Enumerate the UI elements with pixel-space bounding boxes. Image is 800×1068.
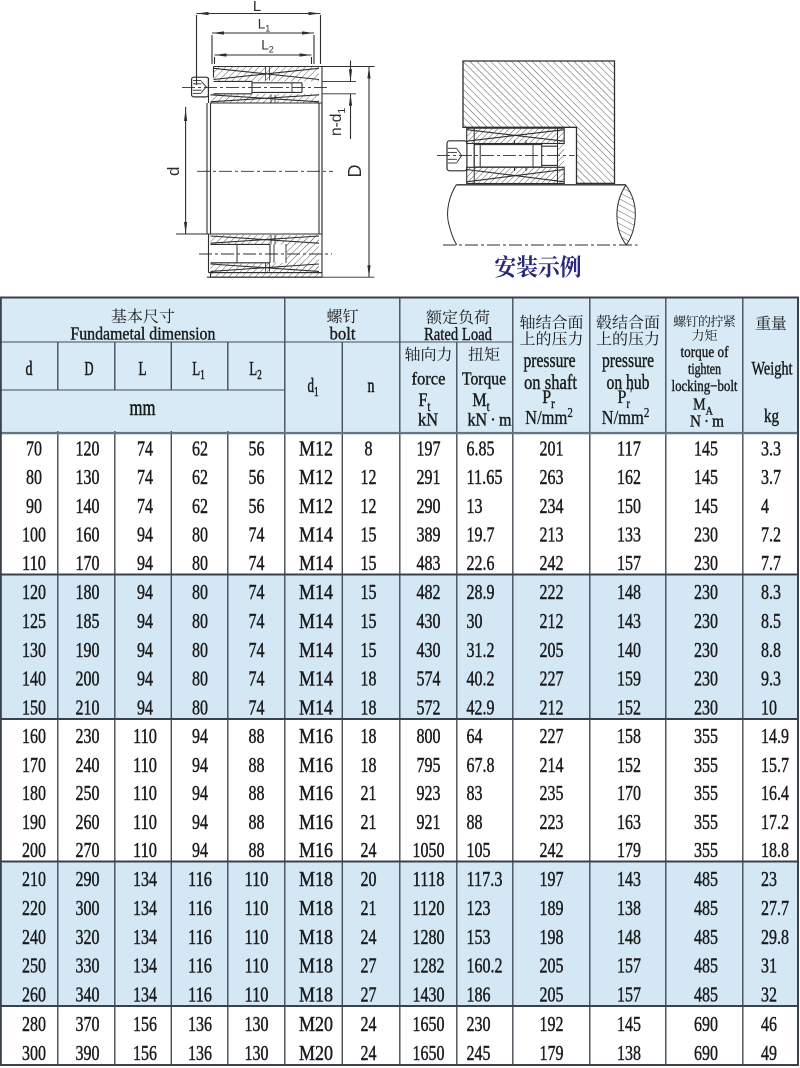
svg-text:430: 430 (417, 639, 441, 663)
svg-text:260: 260 (22, 984, 46, 1008)
svg-text:205: 205 (540, 984, 564, 1008)
svg-text:bolt: bolt (330, 323, 356, 343)
svg-text:159: 159 (617, 668, 641, 692)
svg-text:8.5: 8.5 (761, 610, 781, 634)
svg-text:160: 160 (76, 524, 100, 548)
svg-text:263: 263 (540, 466, 564, 490)
svg-text:116: 116 (188, 955, 212, 979)
svg-text:214: 214 (540, 754, 564, 778)
svg-text:80: 80 (192, 639, 208, 663)
svg-text:18.8: 18.8 (761, 839, 789, 863)
svg-text:340: 340 (76, 984, 100, 1008)
svg-text:145: 145 (694, 466, 718, 490)
svg-text:270: 270 (76, 839, 100, 863)
svg-text:130: 130 (245, 1013, 269, 1037)
svg-text:4: 4 (761, 495, 769, 519)
svg-text:140: 140 (617, 639, 641, 663)
svg-text:42.9: 42.9 (467, 697, 495, 721)
svg-text:M20: M20 (299, 1013, 333, 1037)
svg-text:210: 210 (76, 697, 100, 721)
svg-text:116: 116 (188, 984, 212, 1008)
svg-text:145: 145 (694, 437, 718, 461)
svg-text:145: 145 (694, 495, 718, 519)
svg-text:201: 201 (540, 437, 564, 461)
svg-text:110: 110 (245, 926, 269, 950)
svg-text:9.3: 9.3 (761, 668, 781, 692)
svg-text:tighten: tighten (688, 361, 722, 378)
svg-text:74: 74 (249, 610, 265, 634)
svg-text:21: 21 (361, 782, 377, 806)
svg-text:3.3: 3.3 (761, 437, 781, 461)
svg-text:230: 230 (694, 610, 718, 634)
svg-text:143: 143 (617, 610, 641, 634)
svg-text:200: 200 (76, 668, 100, 692)
svg-text:94: 94 (137, 668, 153, 692)
svg-text:110: 110 (133, 725, 157, 749)
svg-text:on hub: on hub (607, 371, 650, 394)
svg-text:13: 13 (467, 495, 483, 519)
svg-text:62: 62 (192, 437, 208, 461)
svg-text:15: 15 (361, 610, 377, 634)
svg-text:M12: M12 (299, 437, 333, 461)
svg-text:205: 205 (540, 955, 564, 979)
svg-text:62: 62 (192, 466, 208, 490)
svg-text:49: 49 (761, 1042, 777, 1066)
svg-text:80: 80 (192, 668, 208, 692)
svg-text:110: 110 (133, 782, 157, 806)
svg-text:Fundametal dimension: Fundametal dimension (70, 323, 216, 343)
svg-text:8.3: 8.3 (761, 581, 781, 605)
svg-text:torque of: torque of (681, 344, 729, 361)
svg-text:94: 94 (192, 839, 208, 863)
svg-text:74: 74 (249, 524, 265, 548)
svg-text:290: 290 (76, 868, 100, 892)
svg-text:389: 389 (417, 524, 441, 548)
svg-text:260: 260 (76, 811, 100, 835)
svg-text:12: 12 (361, 495, 377, 519)
svg-text:138: 138 (617, 897, 641, 921)
svg-text:M18: M18 (299, 868, 333, 892)
svg-text:M16: M16 (299, 725, 333, 749)
svg-text:80: 80 (26, 466, 42, 490)
svg-text:134: 134 (133, 897, 157, 921)
svg-text:31: 31 (761, 955, 777, 979)
svg-text:94: 94 (137, 610, 153, 634)
svg-text:158: 158 (617, 725, 641, 749)
svg-text:27: 27 (361, 955, 377, 979)
svg-text:483: 483 (417, 552, 441, 576)
svg-text:94: 94 (192, 725, 208, 749)
svg-text:245: 245 (467, 1042, 491, 1066)
svg-text:force: force (412, 368, 446, 388)
svg-text:355: 355 (694, 782, 718, 806)
svg-text:M14: M14 (299, 610, 333, 634)
svg-text:190: 190 (22, 811, 46, 835)
svg-text:197: 197 (417, 437, 441, 461)
svg-text:795: 795 (417, 754, 441, 778)
svg-text:24: 24 (361, 839, 377, 863)
svg-text:d: d (164, 167, 183, 176)
svg-text:148: 148 (617, 581, 641, 605)
svg-text:d: d (26, 357, 34, 379)
svg-text:24: 24 (361, 1013, 377, 1037)
svg-text:179: 179 (540, 1042, 564, 1066)
svg-text:235: 235 (540, 782, 564, 806)
svg-text:28.9: 28.9 (467, 581, 495, 605)
svg-text:30: 30 (467, 610, 483, 634)
svg-text:390: 390 (76, 1042, 100, 1066)
svg-text:134: 134 (133, 984, 157, 1008)
svg-text:163: 163 (617, 811, 641, 835)
svg-text:130: 130 (76, 466, 100, 490)
svg-text:24: 24 (361, 926, 377, 950)
svg-text:157: 157 (617, 955, 641, 979)
svg-text:180: 180 (22, 782, 46, 806)
svg-text:74: 74 (249, 668, 265, 692)
svg-text:56: 56 (249, 495, 265, 519)
svg-text:1118: 1118 (413, 868, 445, 892)
svg-text:N/mm2: N/mm2 (602, 405, 650, 428)
svg-text:6.85: 6.85 (467, 437, 495, 461)
svg-text:923: 923 (417, 782, 441, 806)
svg-text:485: 485 (694, 955, 718, 979)
svg-text:242: 242 (540, 839, 564, 863)
svg-text:8: 8 (365, 437, 373, 461)
svg-text:94: 94 (137, 697, 153, 721)
svg-text:16.4: 16.4 (761, 782, 789, 806)
svg-text:152: 152 (617, 697, 641, 721)
svg-text:N · m: N · m (690, 413, 724, 431)
svg-text:M12: M12 (299, 466, 333, 490)
svg-text:83: 83 (467, 782, 483, 806)
svg-text:M14: M14 (299, 552, 333, 576)
svg-text:240: 240 (22, 926, 46, 950)
svg-text:223: 223 (540, 811, 564, 835)
svg-text:22.6: 22.6 (467, 552, 495, 576)
svg-text:220: 220 (22, 897, 46, 921)
svg-text:136: 136 (188, 1013, 212, 1037)
svg-text:242: 242 (540, 552, 564, 576)
svg-text:355: 355 (694, 725, 718, 749)
svg-text:mm: mm (130, 395, 156, 420)
svg-text:320: 320 (76, 926, 100, 950)
svg-text:27: 27 (361, 984, 377, 1008)
svg-text:88: 88 (249, 782, 265, 806)
svg-text:120: 120 (22, 581, 46, 605)
svg-text:240: 240 (76, 754, 100, 778)
svg-text:230: 230 (694, 524, 718, 548)
svg-text:94: 94 (192, 754, 208, 778)
svg-text:160: 160 (22, 725, 46, 749)
svg-text:690: 690 (694, 1042, 718, 1066)
svg-text:80: 80 (192, 610, 208, 634)
svg-text:3.7: 3.7 (761, 466, 781, 490)
svg-text:pressure: pressure (602, 349, 654, 372)
svg-text:40.2: 40.2 (467, 668, 495, 692)
svg-text:198: 198 (540, 926, 564, 950)
svg-text:355: 355 (694, 811, 718, 835)
svg-text:230: 230 (694, 581, 718, 605)
svg-text:157: 157 (617, 552, 641, 576)
svg-text:230: 230 (694, 639, 718, 663)
svg-text:M18: M18 (299, 897, 333, 921)
svg-text:46: 46 (761, 1013, 777, 1037)
svg-text:80: 80 (192, 524, 208, 548)
svg-text:116: 116 (188, 868, 212, 892)
svg-text:210: 210 (22, 868, 46, 892)
svg-text:Rated Load: Rated Load (424, 324, 493, 344)
svg-text:213: 213 (540, 524, 564, 548)
svg-text:M16: M16 (299, 754, 333, 778)
svg-text:15: 15 (361, 524, 377, 548)
svg-text:88: 88 (467, 811, 483, 835)
svg-text:M16: M16 (299, 839, 333, 863)
svg-text:17.2: 17.2 (761, 811, 789, 835)
svg-text:80: 80 (192, 581, 208, 605)
svg-text:160.2: 160.2 (467, 955, 503, 979)
svg-text:80: 80 (192, 697, 208, 721)
svg-text:kN · m: kN · m (468, 409, 512, 429)
svg-text:205: 205 (540, 639, 564, 663)
svg-text:74: 74 (137, 437, 153, 461)
svg-text:15.7: 15.7 (761, 754, 789, 778)
svg-text:21: 21 (361, 897, 377, 921)
svg-text:locking−bolt: locking−bolt (672, 378, 738, 395)
svg-text:230: 230 (694, 668, 718, 692)
svg-text:7.7: 7.7 (761, 552, 781, 576)
svg-text:138: 138 (617, 1042, 641, 1066)
svg-text:94: 94 (192, 782, 208, 806)
svg-text:kN: kN (418, 409, 438, 429)
svg-text:90: 90 (26, 495, 42, 519)
svg-text:100: 100 (22, 524, 46, 548)
svg-text:1650: 1650 (413, 1042, 445, 1066)
svg-text:170: 170 (617, 782, 641, 806)
svg-text:227: 227 (540, 668, 564, 692)
svg-text:355: 355 (694, 839, 718, 863)
svg-text:1282: 1282 (413, 955, 445, 979)
svg-text:23: 23 (761, 868, 777, 892)
svg-text:88: 88 (249, 811, 265, 835)
svg-text:197: 197 (540, 868, 564, 892)
svg-text:157: 157 (617, 984, 641, 1008)
svg-text:94: 94 (192, 811, 208, 835)
svg-text:921: 921 (417, 811, 441, 835)
svg-text:1430: 1430 (413, 984, 445, 1008)
svg-text:148: 148 (617, 926, 641, 950)
svg-text:290: 290 (417, 495, 441, 519)
svg-text:110: 110 (245, 897, 269, 921)
svg-text:130: 130 (22, 639, 46, 663)
svg-text:kg: kg (764, 406, 779, 427)
svg-text:M12: M12 (299, 495, 333, 519)
svg-text:145: 145 (617, 1013, 641, 1037)
svg-text:N/mm2: N/mm2 (525, 405, 573, 428)
svg-text:M16: M16 (299, 782, 333, 806)
svg-text:482: 482 (417, 581, 441, 605)
svg-text:18: 18 (361, 668, 377, 692)
svg-text:150: 150 (617, 495, 641, 519)
svg-text:186: 186 (467, 984, 491, 1008)
svg-text:12: 12 (361, 466, 377, 490)
svg-text:230: 230 (467, 1013, 491, 1037)
svg-text:15: 15 (361, 581, 377, 605)
svg-text:192: 192 (540, 1013, 564, 1037)
svg-text:64: 64 (467, 725, 483, 749)
svg-text:10: 10 (761, 697, 777, 721)
svg-text:M18: M18 (299, 955, 333, 979)
svg-text:20: 20 (361, 868, 377, 892)
svg-text:105: 105 (467, 839, 491, 863)
svg-text:M14: M14 (299, 668, 333, 692)
svg-text:94: 94 (137, 581, 153, 605)
svg-text:110: 110 (133, 839, 157, 863)
svg-text:74: 74 (137, 466, 153, 490)
svg-text:180: 180 (76, 581, 100, 605)
svg-text:31.2: 31.2 (467, 639, 495, 663)
svg-text:L: L (253, 0, 261, 15)
svg-text:133: 133 (617, 524, 641, 548)
svg-text:156: 156 (133, 1042, 157, 1066)
svg-text:170: 170 (22, 754, 46, 778)
svg-text:116: 116 (188, 897, 212, 921)
svg-text:117.3: 117.3 (467, 868, 503, 892)
svg-text:15: 15 (361, 639, 377, 663)
svg-text:291: 291 (417, 466, 441, 490)
svg-text:1120: 1120 (413, 897, 445, 921)
svg-text:80: 80 (192, 552, 208, 576)
svg-text:32: 32 (761, 984, 777, 1008)
svg-text:140: 140 (22, 668, 46, 692)
svg-text:485: 485 (694, 897, 718, 921)
svg-text:pressure: pressure (524, 349, 576, 372)
svg-text:250: 250 (76, 782, 100, 806)
svg-text:56: 56 (249, 437, 265, 461)
svg-text:110: 110 (245, 868, 269, 892)
svg-text:152: 152 (617, 754, 641, 778)
svg-text:800: 800 (417, 725, 441, 749)
svg-text:150: 150 (22, 697, 46, 721)
svg-text:179: 179 (617, 839, 641, 863)
svg-text:11.65: 11.65 (467, 466, 503, 490)
svg-text:74: 74 (249, 697, 265, 721)
svg-text:M14: M14 (299, 697, 333, 721)
svg-text:212: 212 (540, 610, 564, 634)
svg-text:140: 140 (76, 495, 100, 519)
svg-text:88: 88 (249, 839, 265, 863)
svg-text:Weight: Weight (752, 358, 793, 379)
svg-text:250: 250 (22, 955, 46, 979)
svg-text:136: 136 (188, 1042, 212, 1066)
svg-text:M16: M16 (299, 811, 333, 835)
svg-text:56: 56 (249, 466, 265, 490)
svg-text:227: 227 (540, 725, 564, 749)
svg-text:355: 355 (694, 754, 718, 778)
svg-text:110: 110 (133, 811, 157, 835)
svg-text:170: 170 (76, 552, 100, 576)
svg-text:70: 70 (26, 437, 42, 461)
svg-text:230: 230 (694, 552, 718, 576)
svg-text:1050: 1050 (413, 839, 445, 863)
svg-text:110: 110 (245, 984, 269, 1008)
svg-text:M20: M20 (299, 1042, 333, 1066)
svg-text:200: 200 (22, 839, 46, 863)
svg-text:156: 156 (133, 1013, 157, 1037)
svg-text:212: 212 (540, 697, 564, 721)
svg-text:143: 143 (617, 868, 641, 892)
svg-text:230: 230 (76, 725, 100, 749)
svg-text:L: L (139, 357, 147, 379)
svg-text:94: 94 (137, 639, 153, 663)
svg-text:Torque: Torque (462, 368, 506, 388)
svg-text:M18: M18 (299, 926, 333, 950)
svg-text:D: D (85, 357, 94, 379)
svg-text:74: 74 (249, 552, 265, 576)
svg-text:15: 15 (361, 552, 377, 576)
svg-text:185: 185 (76, 610, 100, 634)
svg-text:130: 130 (245, 1042, 269, 1066)
svg-text:21: 21 (361, 811, 377, 835)
svg-text:134: 134 (133, 868, 157, 892)
svg-text:62: 62 (192, 495, 208, 519)
svg-text:24: 24 (361, 1042, 377, 1066)
svg-text:485: 485 (694, 868, 718, 892)
svg-text:485: 485 (694, 926, 718, 950)
svg-text:94: 94 (137, 552, 153, 576)
svg-text:574: 574 (417, 668, 441, 692)
svg-text:74: 74 (137, 495, 153, 519)
svg-text:27.7: 27.7 (761, 897, 789, 921)
svg-text:125: 125 (22, 610, 46, 634)
svg-text:134: 134 (133, 955, 157, 979)
svg-text:153: 153 (467, 926, 491, 950)
svg-text:300: 300 (76, 897, 100, 921)
svg-text:430: 430 (417, 610, 441, 634)
svg-text:234: 234 (540, 495, 564, 519)
svg-text:690: 690 (694, 1013, 718, 1037)
svg-text:14.9: 14.9 (761, 725, 789, 749)
svg-text:330: 330 (76, 955, 100, 979)
svg-text:134: 134 (133, 926, 157, 950)
svg-text:189: 189 (540, 897, 564, 921)
svg-text:116: 116 (188, 926, 212, 950)
svg-text:74: 74 (249, 639, 265, 663)
svg-text:M18: M18 (299, 984, 333, 1008)
svg-text:18: 18 (361, 754, 377, 778)
svg-text:370: 370 (76, 1013, 100, 1037)
svg-text:8.8: 8.8 (761, 639, 781, 663)
svg-text:D: D (345, 165, 365, 178)
svg-text:74: 74 (249, 581, 265, 605)
svg-text:110: 110 (22, 552, 46, 576)
svg-text:n: n (368, 374, 376, 396)
svg-text:190: 190 (76, 639, 100, 663)
svg-text:572: 572 (417, 697, 441, 721)
svg-text:94: 94 (137, 524, 153, 548)
svg-text:19.7: 19.7 (467, 524, 495, 548)
svg-text:1280: 1280 (413, 926, 445, 950)
svg-text:88: 88 (249, 754, 265, 778)
svg-text:110: 110 (245, 955, 269, 979)
svg-text:88: 88 (249, 725, 265, 749)
svg-text:18: 18 (361, 725, 377, 749)
svg-text:M14: M14 (299, 639, 333, 663)
svg-text:120: 120 (76, 437, 100, 461)
svg-text:222: 222 (540, 581, 564, 605)
svg-text:110: 110 (133, 754, 157, 778)
svg-text:280: 280 (22, 1013, 46, 1037)
svg-text:7.2: 7.2 (761, 524, 781, 548)
